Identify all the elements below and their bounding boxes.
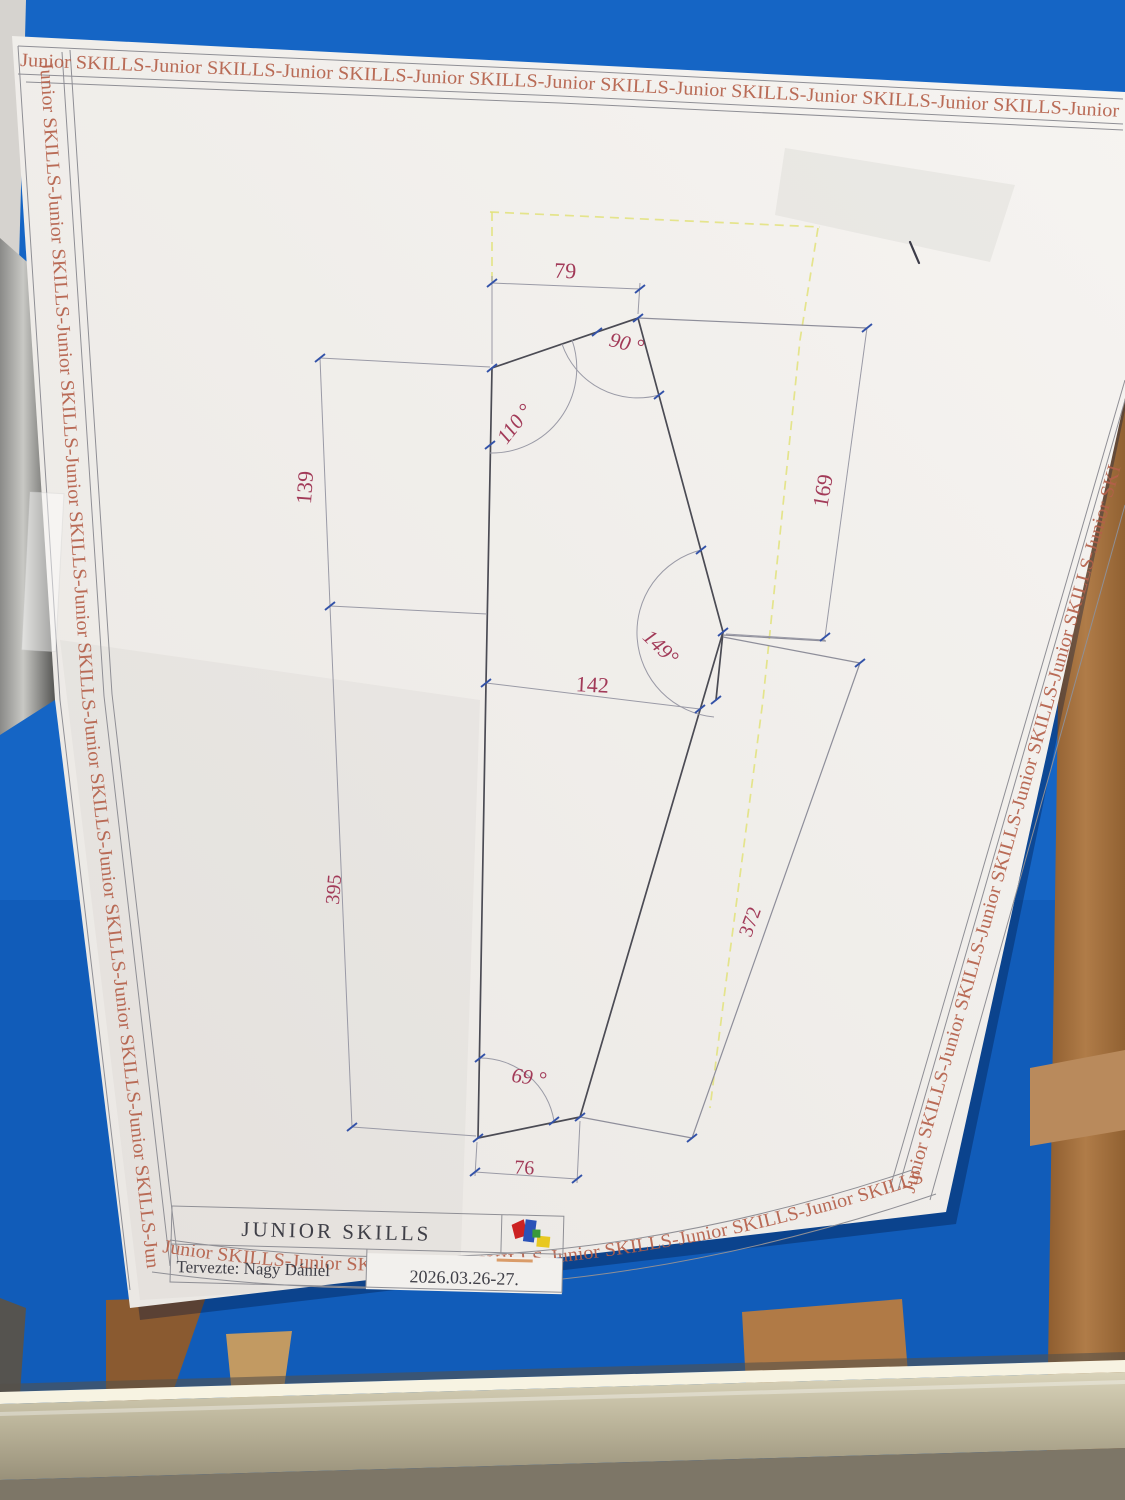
dim-label-76: 76 <box>514 1156 535 1179</box>
dim-label-142: 142 <box>575 671 609 698</box>
dim-label-395: 395 <box>322 874 347 906</box>
dim-label-79: 79 <box>554 258 577 284</box>
angle-label-69: 69 ° <box>510 1063 548 1092</box>
dim-label-139: 139 <box>291 470 318 505</box>
paper-sheet-group <box>12 36 1125 1320</box>
photo-of-technical-drawing: Junior SKILLS-Junior SKILLS-Junior SKILL… <box>0 0 1125 1500</box>
project-date: 2026.03.26-27. <box>409 1266 519 1289</box>
designer-name: Tervezte: Nagy Dániel <box>176 1257 330 1280</box>
title-block-title: JUNIOR SKILLS <box>241 1217 432 1246</box>
